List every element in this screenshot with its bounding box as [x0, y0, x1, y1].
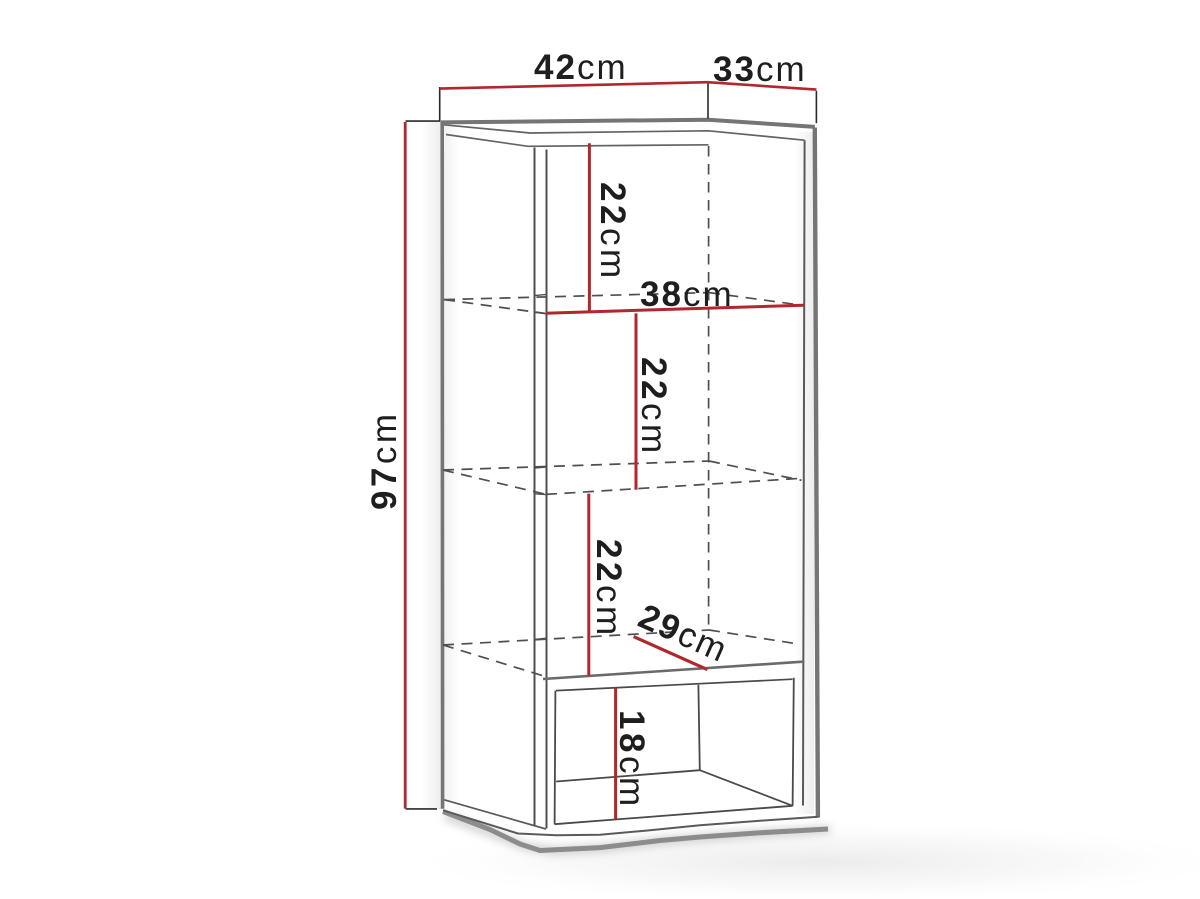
svg-text:42cm: 42cm	[534, 48, 628, 87]
svg-text:38cm: 38cm	[640, 275, 734, 314]
svg-text:18cm: 18cm	[612, 710, 651, 810]
svg-text:97cm: 97cm	[365, 410, 404, 510]
svg-text:33cm: 33cm	[713, 50, 807, 89]
svg-text:22cm: 22cm	[589, 539, 628, 639]
svg-text:22cm: 22cm	[634, 357, 673, 457]
svg-text:22cm: 22cm	[593, 182, 632, 282]
